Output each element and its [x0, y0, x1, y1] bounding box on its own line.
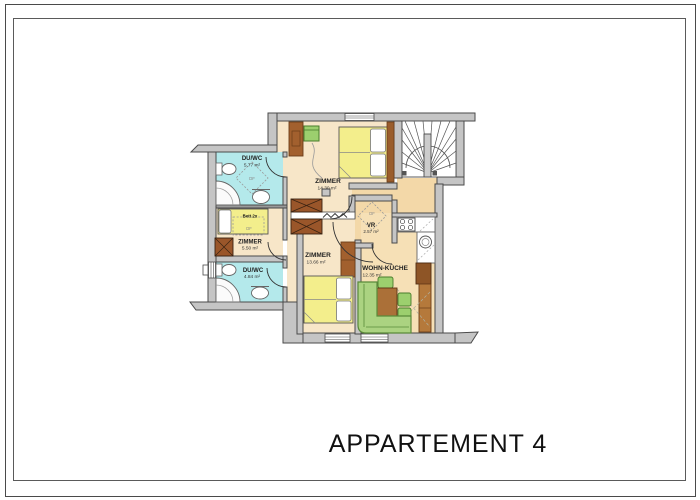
window-top: [345, 114, 374, 121]
toilet-tank-icon: [216, 163, 222, 175]
wardrobe: [341, 242, 355, 277]
wall-stairs-right: [456, 121, 464, 184]
room-area: 13.66 m²: [307, 260, 326, 266]
dining-chair: [378, 277, 393, 288]
room-label: DU/WC: [242, 156, 263, 162]
room-area: 5.50 m²: [242, 246, 259, 252]
wall-partition-2: [216, 256, 283, 262]
room-label: ZIMMER: [305, 252, 331, 259]
staircase: [402, 121, 456, 177]
room-label: WOHN-KÜCHE: [362, 263, 409, 272]
wall-vestibule-right: [392, 200, 397, 243]
pillow: [371, 129, 386, 152]
bed-label: Bett 2x: [243, 214, 258, 219]
plan-title: APPARTEMENT 4: [288, 430, 588, 459]
room-label: ZIMMER: [238, 240, 262, 246]
wall-corr-a: [283, 152, 287, 157]
floor-plan: DU/WC 5.77 m² DF ZIMMER 14.30 m² Bett 2x…: [0, 0, 700, 500]
skylight-label: DF: [246, 226, 252, 231]
pillow: [371, 154, 386, 176]
kitchen-cabinet: [416, 263, 431, 284]
room-area: 2.57 m²: [363, 229, 379, 234]
stair-rail: [424, 134, 431, 177]
wall-hall-north: [349, 183, 397, 189]
room-label: ZIMMER: [315, 178, 341, 185]
stair-newel-right: [433, 171, 438, 176]
wall-stairs-left: [394, 121, 402, 178]
pillow: [219, 210, 231, 233]
window-left: [203, 262, 216, 278]
window-bottom-right: [361, 334, 388, 342]
wardrobe: [289, 122, 303, 156]
kitchen-sink-icon: [420, 236, 432, 248]
toilet-tank-icon: [216, 264, 222, 276]
wall-right: [435, 184, 443, 334]
sink-icon: [253, 191, 270, 204]
wall-bedroombottom-left: [297, 219, 303, 334]
pillow: [337, 301, 352, 321]
wall-kitchen-north: [392, 213, 437, 217]
wall-bottom-break: [455, 332, 478, 343]
stove-icon: [398, 218, 415, 231]
wall-vestibule-bottom: [355, 243, 373, 248]
room-area: 14.30 m²: [318, 186, 337, 192]
room-area: 12.35 m²: [363, 273, 382, 279]
toilet-icon: [222, 164, 236, 175]
wall-vestibule-top: [352, 195, 392, 201]
pillow: [337, 278, 352, 299]
wall-leftwing-top: [191, 145, 277, 152]
dining-chair: [398, 293, 411, 306]
wall-corr-d: [283, 287, 287, 302]
skylight-label: DF: [249, 176, 255, 181]
room-area: 4.84 m²: [244, 274, 261, 280]
toilet-icon: [222, 265, 236, 276]
sink-icon: [252, 287, 269, 299]
wall-corr-c: [283, 256, 287, 268]
headboard-cabinet: [387, 122, 394, 182]
window-bottom-left: [325, 334, 350, 342]
room-label: DU/WC: [243, 268, 264, 274]
stair-newel-left: [402, 171, 407, 176]
wall-leftwing-left: [208, 152, 216, 310]
room-area: 5.77 m²: [244, 163, 261, 169]
double-bed: [339, 127, 388, 178]
skylight-label: DF: [369, 211, 375, 216]
double-bed: [304, 276, 353, 323]
chair: [304, 126, 319, 141]
